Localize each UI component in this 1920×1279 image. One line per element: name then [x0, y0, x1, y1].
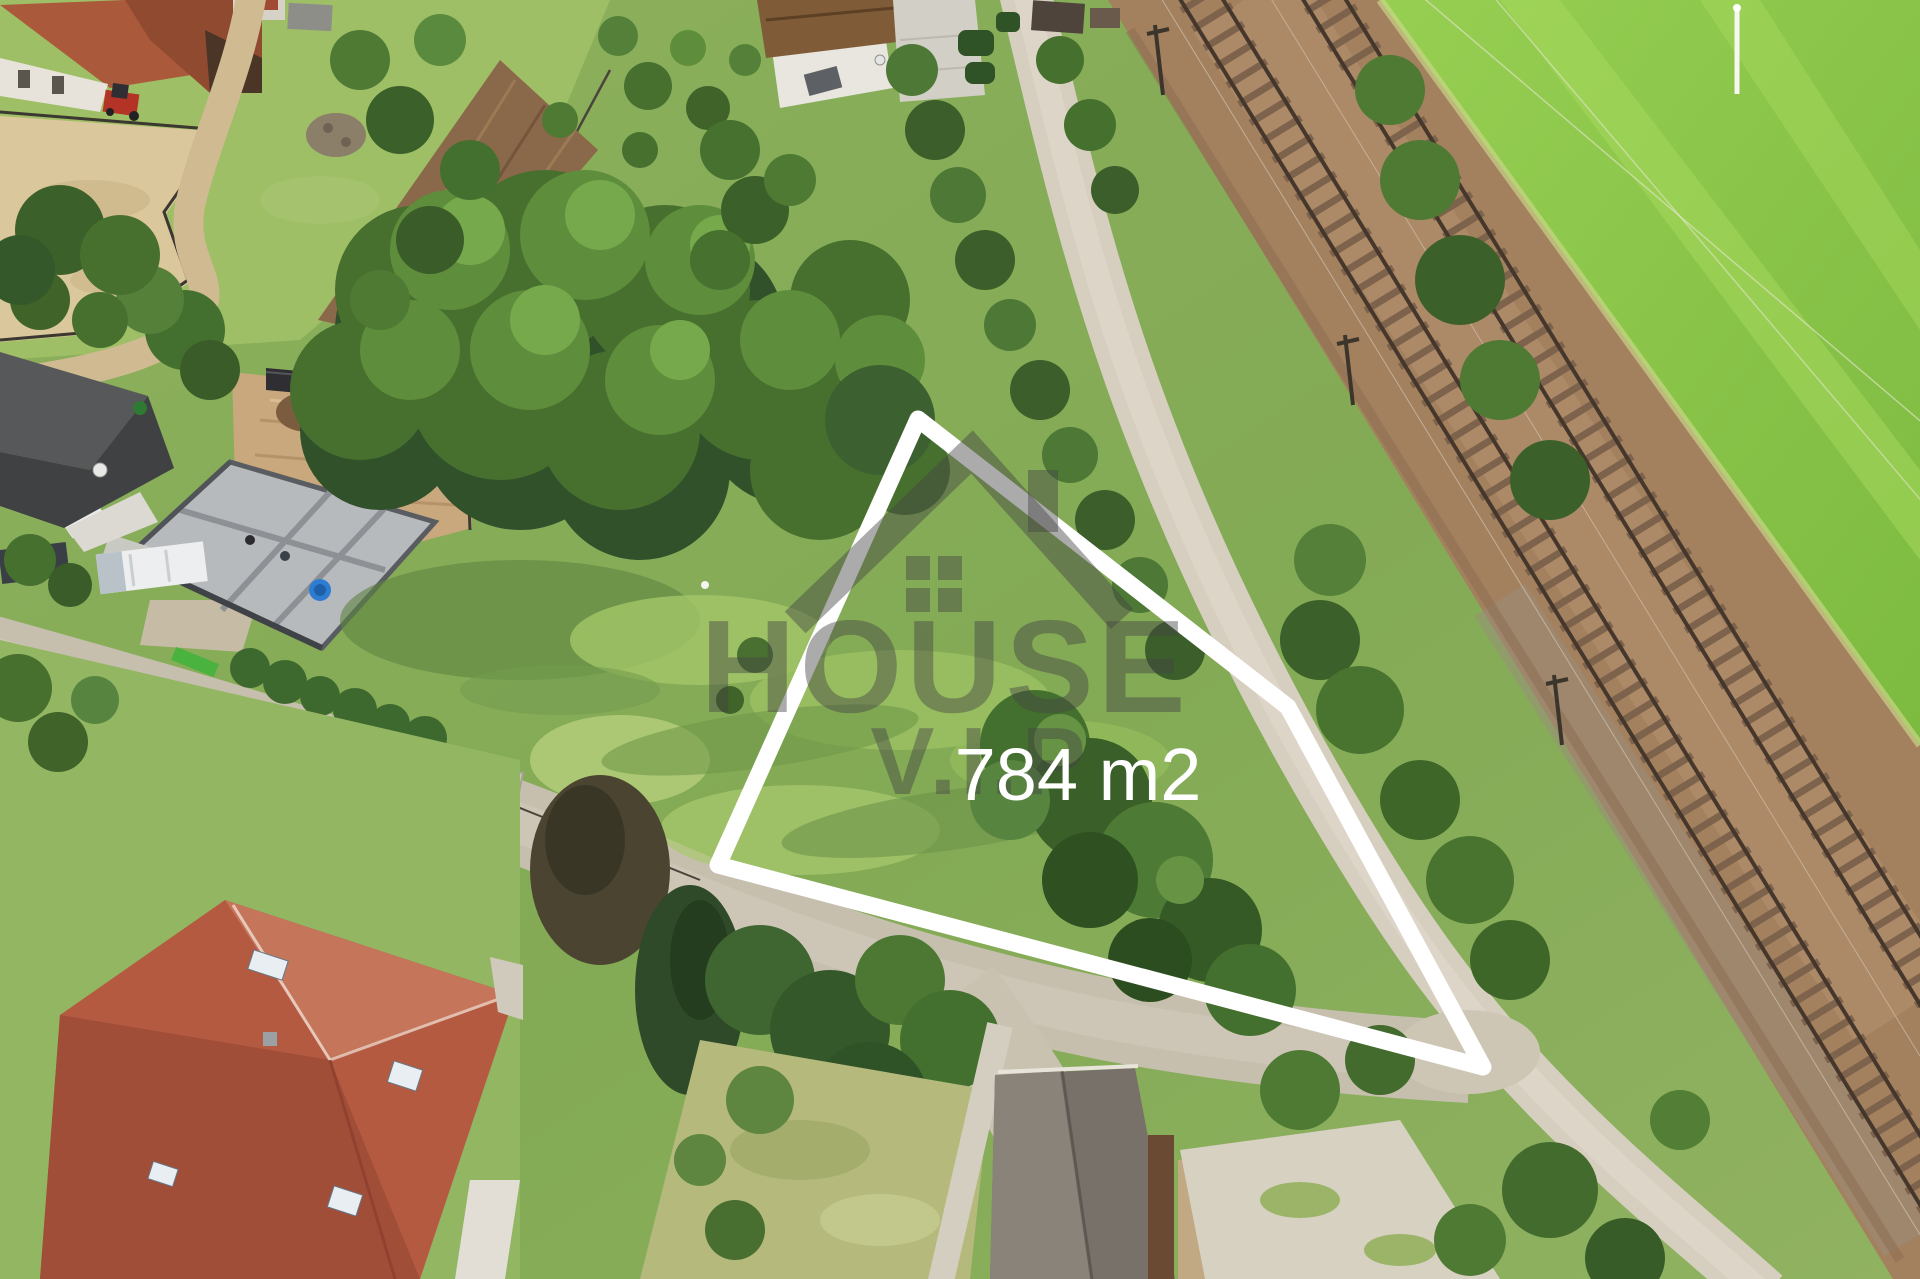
watermark-window: [938, 556, 962, 580]
worker: [280, 551, 290, 561]
white-speck: [701, 581, 709, 589]
green-tank: [133, 401, 147, 415]
shed: [287, 3, 332, 31]
wood-structure: [1148, 1135, 1174, 1279]
scene: HOUSE V.I.P 784 m2: [0, 0, 1920, 1279]
watermark-window: [906, 556, 930, 580]
chimney: [263, 1032, 277, 1046]
aerial-photo: HOUSE V.I.P 784 m2: [0, 0, 1920, 1279]
dark-shed: [1031, 0, 1085, 34]
area-label: 784 m2: [955, 733, 1202, 816]
heat-pump: [93, 463, 107, 477]
hedge: [996, 12, 1020, 32]
hedge: [965, 62, 995, 84]
ac-unit: [875, 55, 885, 65]
worker: [245, 535, 255, 545]
watermark-chimney: [1028, 470, 1058, 532]
hedge: [958, 30, 994, 56]
rubble-pile: [306, 113, 366, 157]
